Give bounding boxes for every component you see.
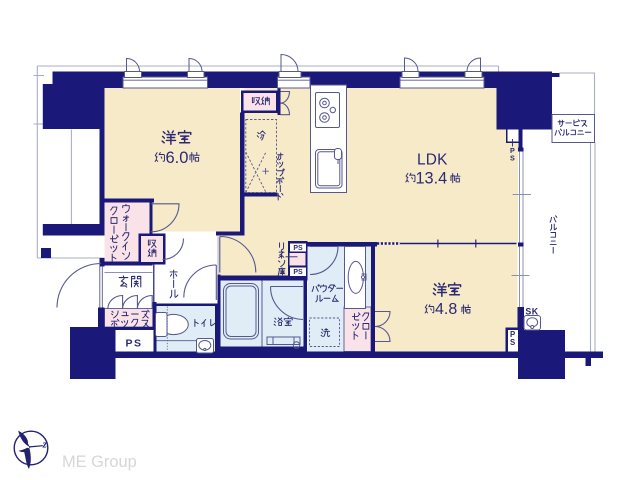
svg-text:S: S bbox=[510, 338, 515, 347]
svg-text:LDK: LDK bbox=[417, 151, 448, 168]
svg-text:SK: SK bbox=[525, 307, 538, 317]
svg-text:S: S bbox=[510, 154, 515, 163]
svg-text:4.8: 4.8 bbox=[435, 301, 457, 318]
svg-text:6.0: 6.0 bbox=[166, 149, 189, 167]
svg-text:13.4: 13.4 bbox=[416, 169, 448, 187]
svg-text:PS: PS bbox=[293, 269, 303, 276]
svg-text:PS: PS bbox=[125, 338, 142, 350]
svg-text:PS: PS bbox=[293, 245, 303, 252]
svg-text:ME Group: ME Group bbox=[62, 453, 137, 471]
svg-text:z: z bbox=[42, 440, 48, 451]
